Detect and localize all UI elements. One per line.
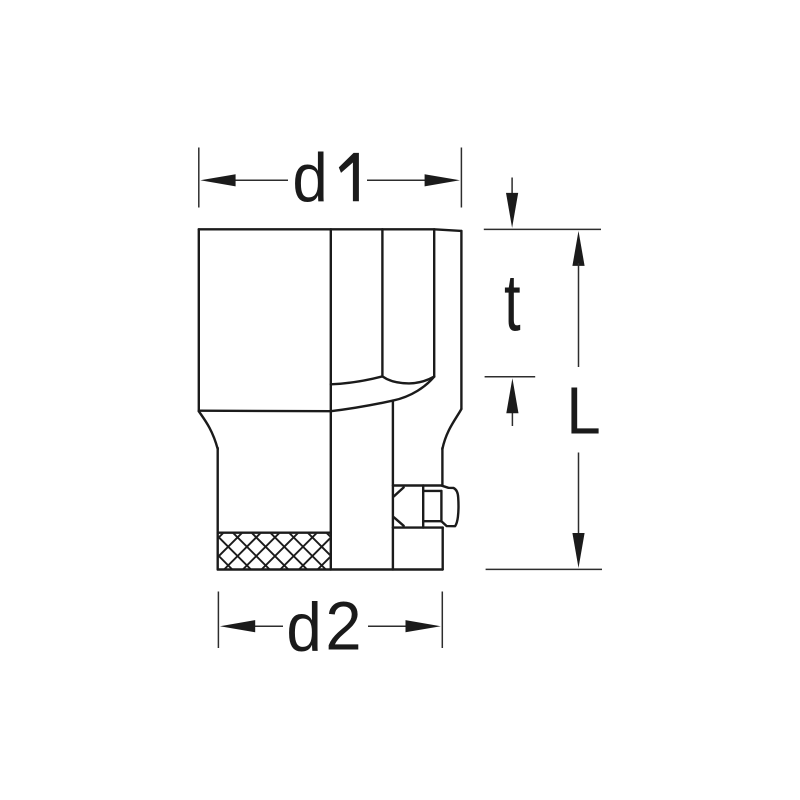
svg-text:L: L [566,373,600,448]
svg-text:d: d [292,140,327,217]
svg-text:2: 2 [325,589,361,665]
svg-text:t: t [504,258,521,349]
svg-text:d: d [286,590,321,667]
